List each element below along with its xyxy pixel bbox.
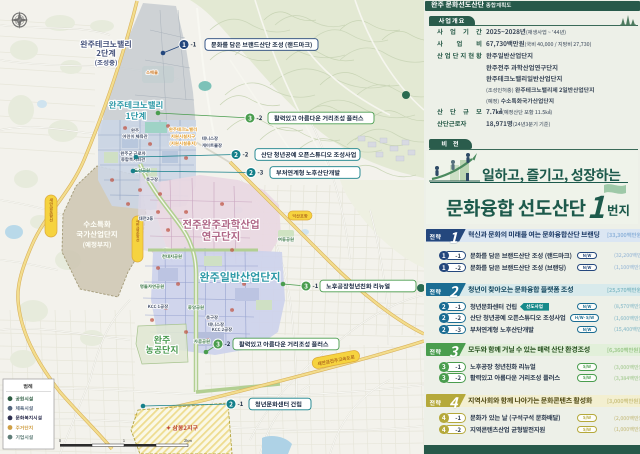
svg-text:2: 2 [234,149,238,159]
svg-text:지원시설지구: 지원시설지구 [171,134,195,140]
svg-text:중앙공원: 중앙공원 [188,305,204,311]
svg-text:✽: ✽ [184,154,189,162]
svg-text:활력있고 아름다운 거리조성 플러스: 활력있고 아름다운 거리조성 플러스 [239,339,329,348]
svg-text:문화복지시설: 문화복지시설 [16,415,43,422]
svg-text:✽: ✽ [220,200,225,208]
svg-text:공원시설: 공원시설 [16,396,34,403]
svg-text:익산포항: 익산포항 [292,214,308,220]
svg-text:0: 0 [59,439,61,444]
svg-text:대전2동: 대전2동 [139,216,154,222]
svg-text:체육시설: 체육시설 [16,405,34,412]
svg-text:(조성중): (조성중) [95,57,118,67]
svg-text:새만금포항선: 새만금포항선 [48,198,54,223]
svg-text:어린이 체육관: 어린이 체육관 [122,134,147,140]
svg-text:✽: ✽ [150,316,155,324]
svg-text:천대지공원: 천대지공원 [162,254,182,260]
svg-text:✽: ✽ [176,280,181,288]
svg-text:✽: ✽ [156,264,161,272]
svg-text:문화를 담은 브랜드산단 조성 (랜드마크): 문화를 담은 브랜드산단 조성 (랜드마크) [211,40,312,49]
svg-text:3: 3 [216,338,220,348]
svg-text:3: 3 [304,280,308,290]
svg-text:KCC 2공장: KCC 2공장 [212,327,232,333]
svg-text:게이트볼장: 게이트볼장 [202,143,222,149]
svg-text:축구장: 축구장 [206,315,218,321]
svg-text:1단계: 1단계 [126,110,147,122]
svg-text:(예정부지): (예정부지) [83,239,112,249]
svg-text:KCC 1공장: KCC 1공장 [148,304,168,310]
svg-text:(지원시설용지): (지원시설용지) [169,141,197,147]
svg-text:여동공원: 여동공원 [278,237,294,243]
svg-text:✽: ✽ [184,208,189,216]
svg-text:명돌자연공원: 명돌자연공원 [140,284,164,290]
svg-text:✽: ✽ [158,190,163,198]
svg-text:✽: ✽ [230,246,235,254]
svg-text:1: 1 [123,439,125,444]
svg-text:-1: -1 [191,40,197,49]
svg-text:소메울: 소메울 [146,70,158,76]
svg-text:청년문화센터 건립: 청년문화센터 건립 [255,399,302,408]
svg-text:-2: -2 [243,150,249,159]
svg-text:-1: -1 [238,399,244,408]
svg-text:종합복지회관: 종합복지회관 [121,157,145,163]
svg-text:테니스장: 테니스장 [202,136,218,142]
svg-text:✽: ✽ [184,328,189,336]
svg-text:✽: ✽ [230,306,235,314]
svg-text:2: 2 [229,398,233,408]
svg-text:3: 3 [248,112,252,122]
svg-text:1: 1 [182,39,186,49]
svg-text:✽: ✽ [156,208,161,216]
svg-text:✽: ✽ [110,176,115,184]
svg-text:2km: 2km [184,438,192,444]
svg-text:✽: ✽ [148,140,153,148]
svg-text:농공단지: 농공단지 [145,343,178,356]
svg-text:✽: ✽ [123,124,128,132]
svg-text:축구장: 축구장 [146,177,158,183]
svg-text:완주테크노밸리: 완주테크노밸리 [169,127,197,133]
svg-text:2: 2 [249,167,253,177]
svg-text:노후공장청년친화 리뉴얼: 노후공장청년친화 리뉴얼 [326,281,390,290]
svg-text:✽: ✽ [138,186,143,194]
svg-text:✽: ✽ [166,226,171,234]
svg-text:-2: -2 [225,339,231,348]
svg-text:-2: -2 [257,113,263,122]
svg-text:부처연계형 노후산단개발: 부처연계형 노후산단개발 [276,168,340,177]
svg-text:활력있고 아름다운 거리조성 플러스: 활력있고 아름다운 거리조성 플러스 [274,113,364,122]
svg-text:주거단지: 주거단지 [16,424,34,431]
svg-text:기업시설: 기업시설 [16,434,34,441]
svg-text:-3: -3 [258,168,264,177]
svg-text:-1: -1 [313,281,319,290]
svg-text:✽: ✽ [126,200,131,208]
svg-text:연구단지: 연구단지 [202,229,241,244]
svg-text:자콤공원: 자콤공원 [194,339,210,345]
svg-text:범례: 범례 [23,383,33,390]
svg-text:✦ 삼봉2지구: ✦ 삼봉2지구 [166,423,198,432]
svg-text:완주일반산업단지: 완주일반산업단지 [200,269,281,285]
svg-text:산단 청년공예 오픈스튜디오 조성사업: 산단 청년공예 오픈스튜디오 조성사업 [261,150,357,159]
